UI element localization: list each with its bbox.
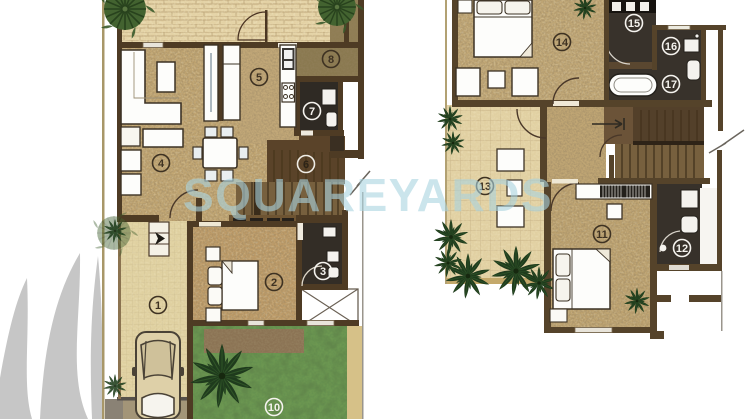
svg-text:16: 16 [665,41,677,53]
svg-text:14: 14 [556,37,569,49]
svg-text:8: 8 [328,54,334,66]
svg-text:12: 12 [676,243,688,255]
svg-text:17: 17 [665,79,677,91]
svg-text:7: 7 [309,106,315,118]
svg-text:11: 11 [596,229,608,241]
svg-text:3: 3 [320,266,326,278]
svg-text:4: 4 [158,158,165,170]
svg-text:2: 2 [271,277,277,289]
svg-text:1: 1 [155,300,161,312]
svg-text:SQUAREYARDS: SQUAREYARDS [183,169,553,221]
svg-text:15: 15 [628,18,640,30]
svg-text:5: 5 [256,72,262,84]
svg-text:10: 10 [268,402,280,414]
